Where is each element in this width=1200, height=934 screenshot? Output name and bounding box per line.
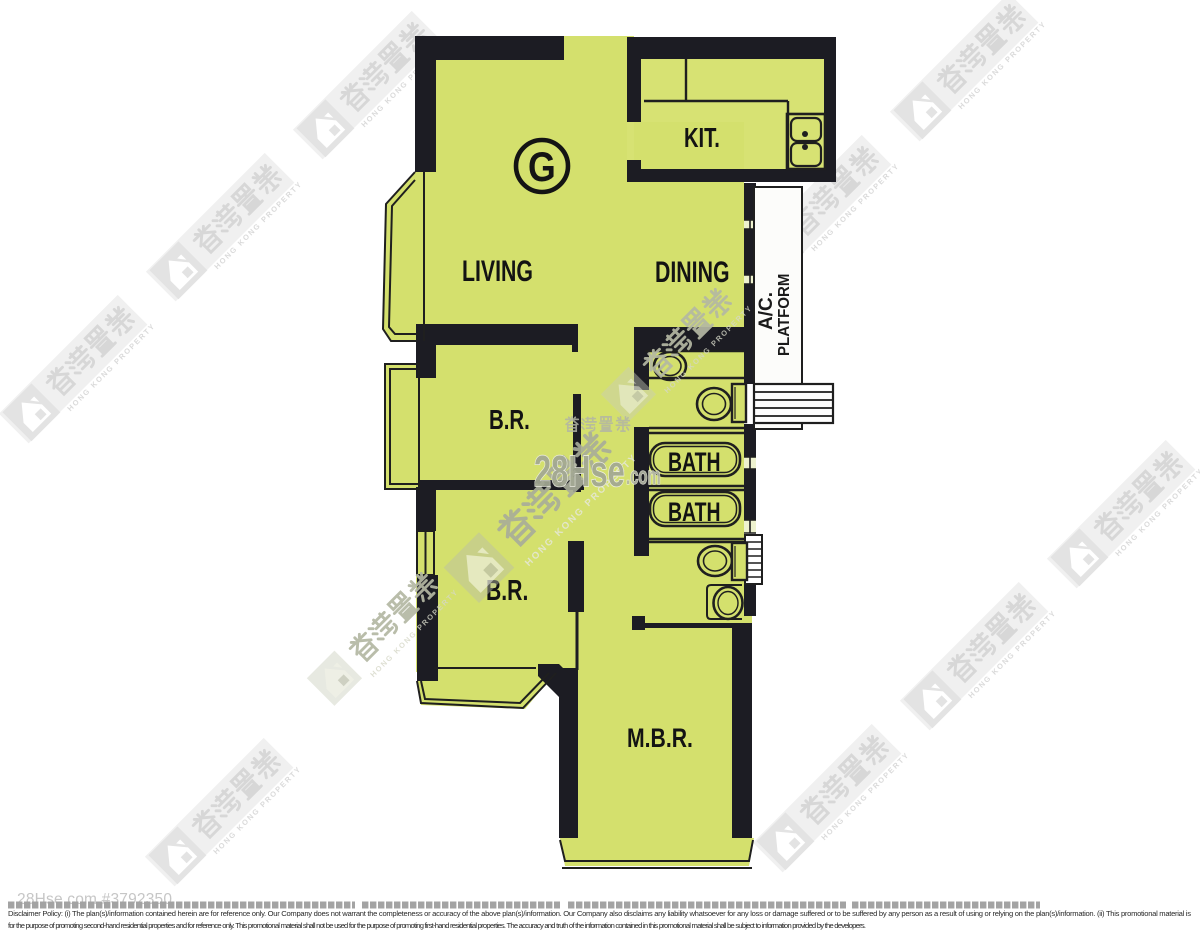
svg-text:A/C.: A/C.: [756, 292, 777, 330]
svg-text:.com: .com: [626, 464, 661, 490]
svg-text:BATH: BATH: [668, 497, 721, 527]
svg-text:LIVING: LIVING: [462, 253, 533, 288]
svg-text:BATH: BATH: [668, 447, 721, 477]
svg-text:28Hse: 28Hse: [534, 448, 625, 497]
svg-text:M.B.R.: M.B.R.: [627, 724, 693, 754]
svg-text:KIT.: KIT.: [684, 123, 720, 154]
svg-text:G: G: [528, 144, 556, 190]
svg-text:Disclaimer Policy: (i) The pla: Disclaimer Policy: (i) The plan(s)/infor…: [8, 909, 1191, 918]
svg-text:PLATFORM: PLATFORM: [776, 274, 794, 356]
svg-text:DINING: DINING: [655, 254, 730, 289]
svg-text:for the purpose of promoting s: for the purpose of promoting second-hand…: [8, 921, 866, 930]
svg-text:B.R.: B.R.: [489, 405, 530, 436]
